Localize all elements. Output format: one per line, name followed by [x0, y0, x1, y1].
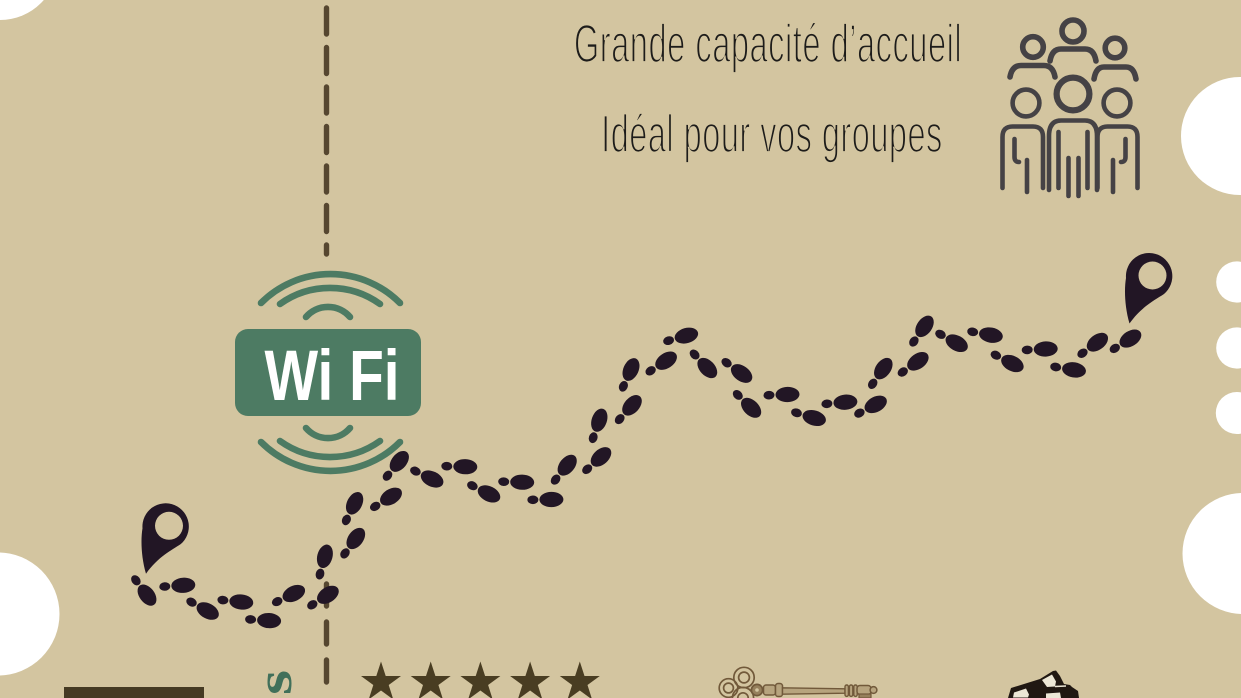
svg-text:Grande capacité d’accueil: Grande capacité d’accueil — [574, 15, 962, 74]
svg-text:ces: ces — [248, 664, 303, 698]
svg-text:Idéal pour vos groupes: Idéal pour vos groupes — [601, 105, 943, 164]
svg-text:Wi Fi: Wi Fi — [264, 336, 399, 416]
